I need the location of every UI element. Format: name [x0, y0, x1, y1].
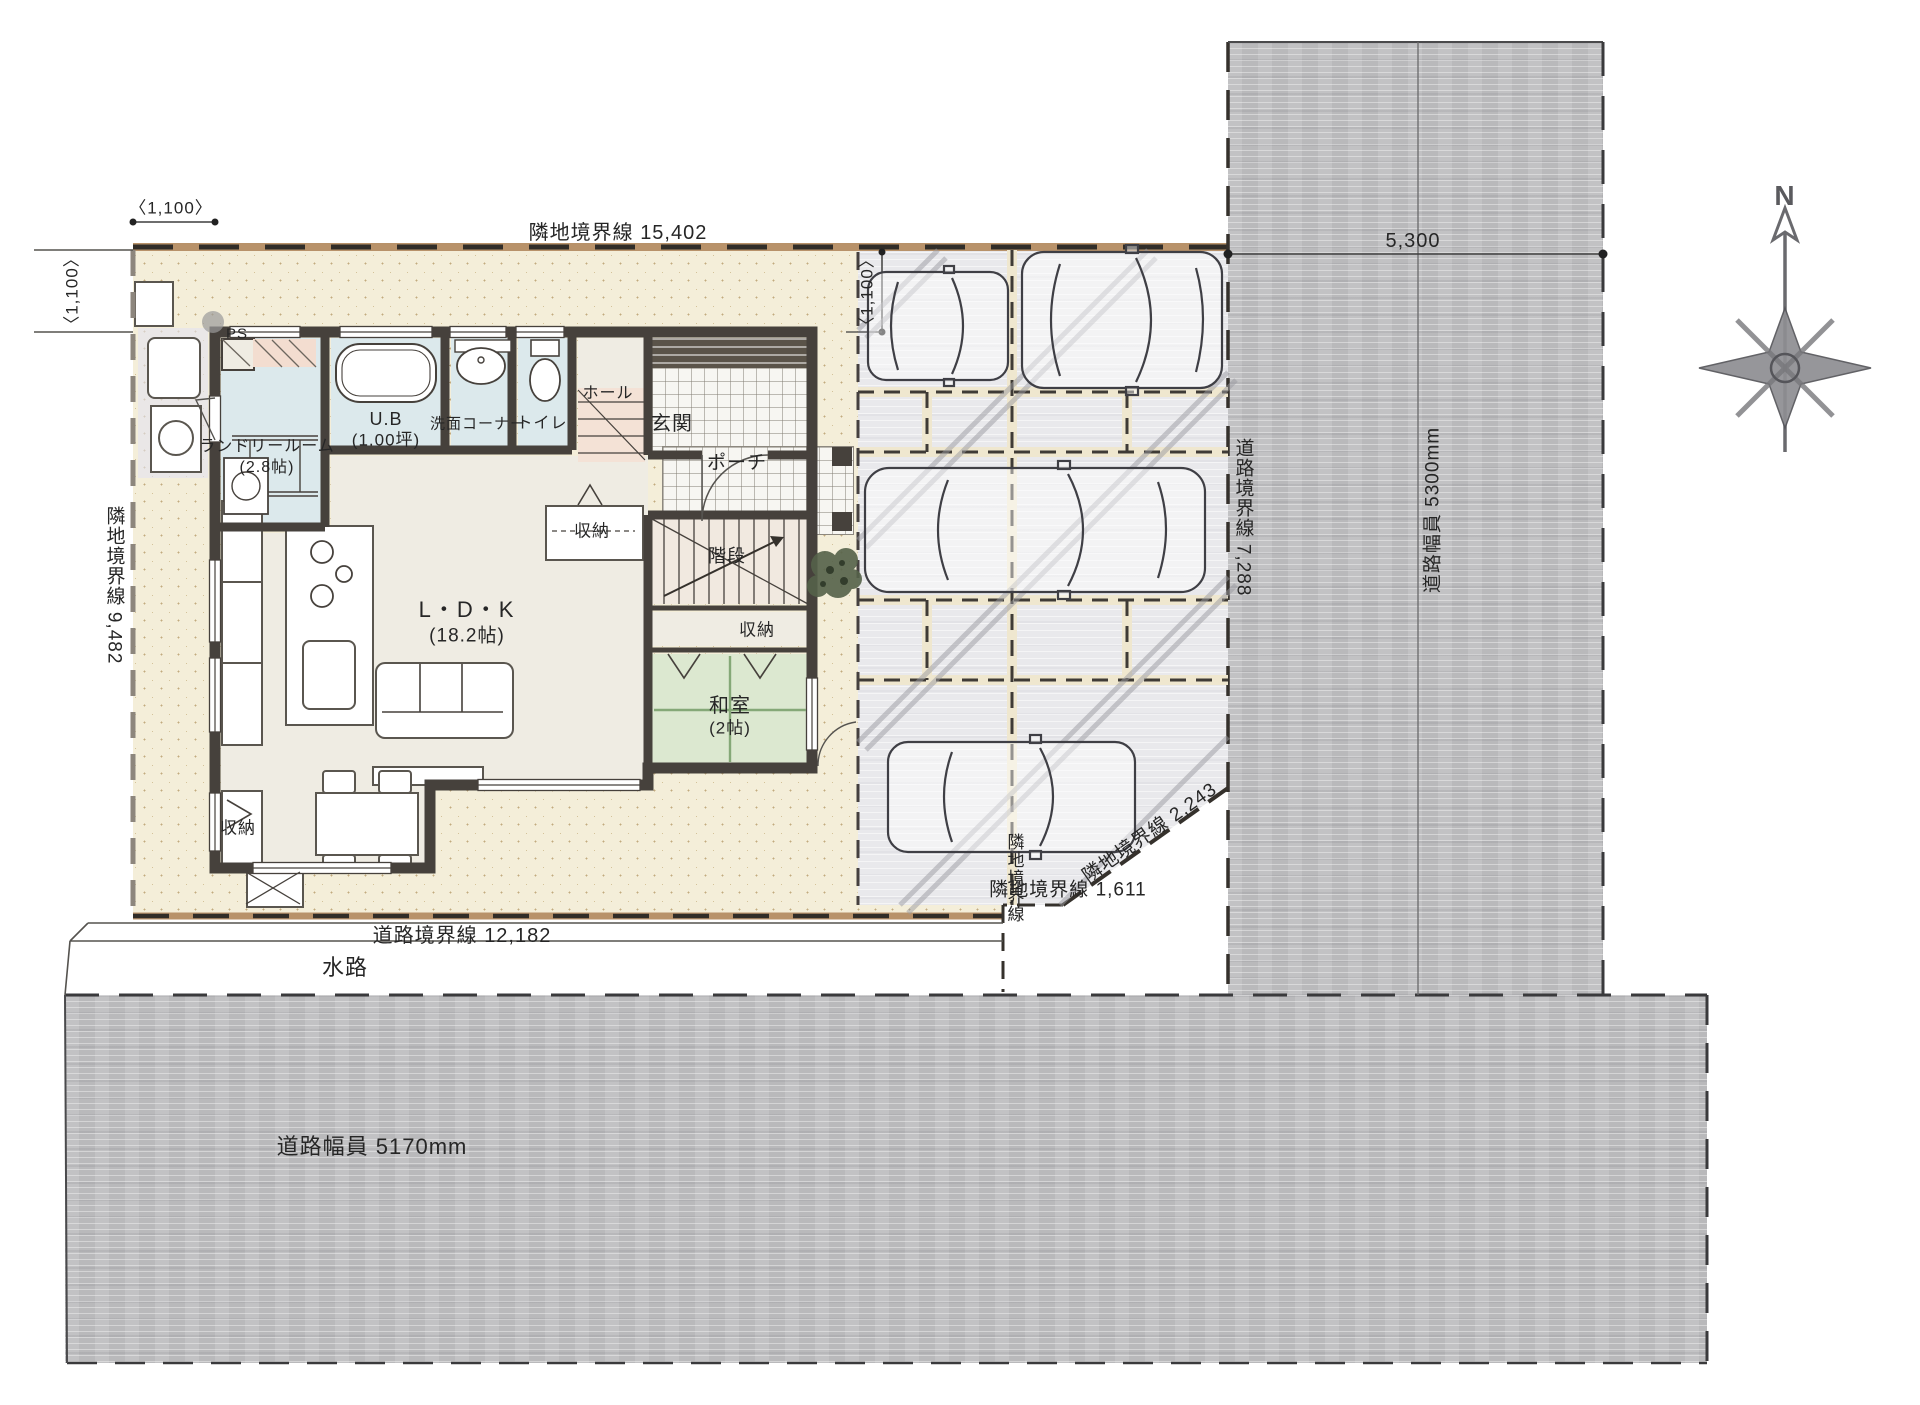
boundary-label-corner-vertical: 隣地境界線 [1006, 833, 1023, 923]
kitchen-back-cabinet [221, 500, 263, 746]
chair [378, 854, 412, 871]
shoe-cabinet [652, 338, 808, 368]
road-bottom [65, 995, 1707, 1363]
porch-column [832, 512, 852, 531]
room-wash-corner [451, 338, 512, 450]
room-storage-washitsu [652, 612, 808, 646]
road-right-width-label: 道路幅員 5300mm [1424, 427, 1443, 593]
label-entrance: 玄関 [651, 414, 693, 434]
chair [322, 770, 356, 794]
ac-fan [158, 420, 194, 456]
boundary-label-top: 隣地境界線 15,402 [529, 223, 708, 243]
chair [378, 770, 412, 794]
boundary-label-left: 隣地境界線 9,482 [105, 506, 124, 665]
label-storage-dining: 収納 [220, 820, 256, 837]
water-heater-tank [147, 337, 201, 399]
label-toilet: トイレ [516, 416, 567, 432]
pipe-space-box [221, 338, 255, 371]
label-ldk: L・D・K [419, 599, 516, 621]
road-right [1228, 42, 1603, 995]
porch-column [832, 447, 852, 466]
kitchen-sink [302, 640, 356, 710]
chair [322, 854, 356, 871]
label-bath: U.B [369, 410, 402, 428]
label-storage-washitsu: 収納 [739, 622, 775, 639]
boundary-label-right: 道路境界線 7,288 [1234, 438, 1253, 597]
site-plan: 隣地境界線 15,402 隣地境界線 9,482 道路境界線 12,182 道路… [0, 0, 1920, 1405]
boundary-label-bottom: 道路境界線 12,182 [373, 926, 552, 946]
outdoor-equipment [134, 281, 174, 327]
dim-offset-parking: 〈1,100〉 [859, 250, 876, 334]
label-laundry: ランドリールーム [199, 439, 335, 455]
dim-offset-top: 〈1,100〉 [129, 200, 213, 217]
dining-table [315, 792, 419, 856]
label-laundry-size: (2.8帖) [240, 460, 295, 476]
label-japanese-room: 和室 [709, 696, 751, 716]
entrance-floor [652, 368, 808, 455]
road-bottom-width-label: 道路幅員 5170mm [277, 1136, 468, 1158]
label-ldk-size: (18.2帖) [429, 627, 505, 646]
dim-road-right-span: 5,300 [1385, 231, 1440, 251]
label-porch: ポーチ [707, 454, 767, 473]
label-storage-stairs: 収納 [574, 523, 610, 540]
label-stairs: 階段 [708, 547, 746, 565]
room-toilet [518, 338, 572, 450]
label-japanese-room-size: (2帖) [709, 720, 751, 737]
hatched-void [253, 339, 316, 367]
label-wash-corner: 洗面コーナー [430, 417, 526, 432]
label-bath-size: (1.00坪) [352, 432, 420, 449]
waterway-label: 水路 [322, 957, 368, 979]
dim-offset-left: 〈1,100〉 [64, 249, 81, 333]
compass-north-label: N [1774, 182, 1795, 210]
compass-icon [1699, 208, 1871, 452]
label-hall: ホール [582, 386, 633, 402]
label-pipe-space: PS [226, 327, 248, 342]
sofa [375, 662, 514, 739]
outdoor-step [246, 872, 304, 908]
